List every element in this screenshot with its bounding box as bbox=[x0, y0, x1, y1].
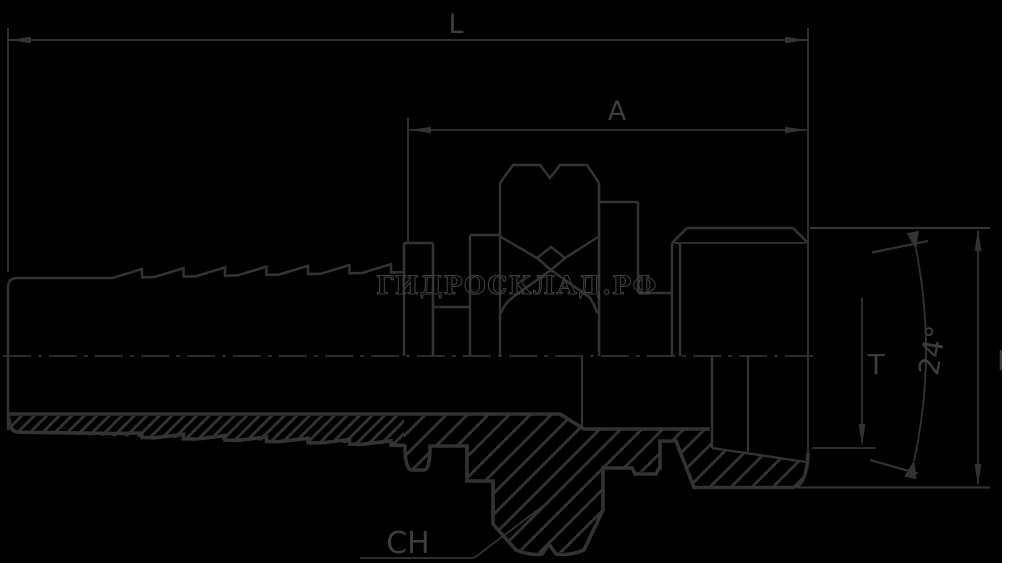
dim-label-L: L bbox=[448, 9, 463, 40]
right-margin-strip bbox=[1002, 0, 1029, 563]
dim-label-CH: CH bbox=[386, 526, 430, 561]
arrowhead-right-icon bbox=[785, 37, 807, 43]
neck-and-ring bbox=[433, 183, 500, 356]
arrowhead-down-icon bbox=[859, 424, 866, 446]
arrowhead-up-icon bbox=[975, 230, 982, 252]
hex-top bbox=[500, 165, 599, 356]
dim-F bbox=[975, 230, 982, 487]
arrowhead-down-icon bbox=[975, 464, 982, 486]
arrowhead-left-icon bbox=[9, 37, 31, 43]
arrowhead-left-icon bbox=[409, 127, 431, 133]
thread-crest bbox=[672, 228, 808, 243]
cone-surface-upper bbox=[872, 241, 928, 253]
watermark-text: ГИДРОСКЛАД.РФ bbox=[376, 271, 658, 300]
hex-diamond bbox=[537, 247, 565, 270]
inner-cone-line bbox=[712, 356, 806, 462]
fitting-drawing: L A T F 24° CH ГИДРОСКЛАД.РФ bbox=[0, 0, 1029, 563]
body-section-hatch bbox=[404, 415, 806, 553]
technical-drawing-page: L A T F 24° CH ГИДРОСКЛАД.РФ bbox=[0, 0, 1029, 563]
dim-A bbox=[408, 118, 808, 242]
dim-label-T: T bbox=[866, 348, 885, 381]
hose-tail-barbs bbox=[8, 243, 404, 430]
dim-label-A: A bbox=[608, 96, 627, 127]
cone-surface-lower bbox=[870, 460, 918, 474]
arrowhead-right-icon bbox=[785, 127, 807, 133]
dim-label-angle: 24° bbox=[912, 323, 953, 378]
dim-T bbox=[812, 298, 876, 448]
